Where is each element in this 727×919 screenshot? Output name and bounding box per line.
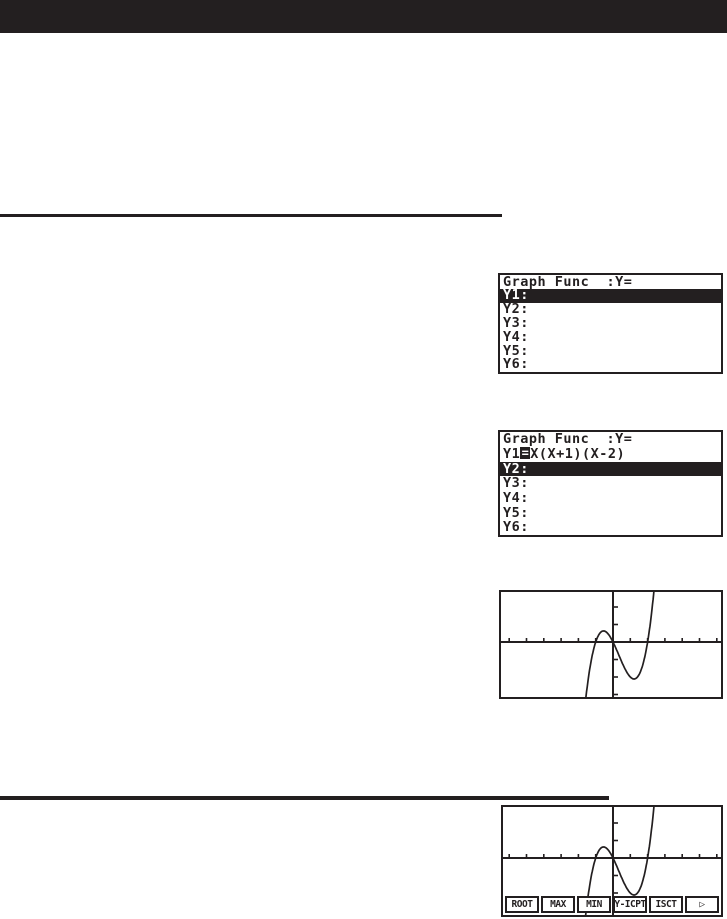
lcd-header: Graph Func :Y= (500, 275, 721, 289)
lcd-row: Y2: (500, 303, 721, 317)
lcd-row-label: Y6: (503, 519, 529, 535)
lcd-row: Y5: (500, 506, 721, 521)
lcd-row-label: Y6: (503, 356, 529, 372)
fkey-y-icpt: Y-ICPT (613, 896, 647, 913)
function-graph-plot (501, 592, 721, 697)
lcd-row-label: Y3: (503, 475, 529, 491)
lcd-row-label: Y2: (503, 461, 529, 477)
lcd-row: Y4: (500, 331, 721, 345)
fkey-max: MAX (541, 896, 575, 913)
lcd-row: Y6: (500, 358, 721, 372)
lcd-row: Y6: (500, 520, 721, 535)
masthead-bar (0, 0, 727, 33)
lcd-row-label: Y1 (503, 446, 520, 462)
fkey-menu-row: ROOTMAXMINY-ICPTISCT▷ (505, 896, 719, 913)
lcd-row: Y4: (500, 491, 721, 506)
lcd-row-label: Y5: (503, 505, 529, 521)
lcd-row: Y5: (500, 345, 721, 359)
section-rule-top (0, 214, 502, 217)
section-rule-bottom (0, 796, 609, 800)
function-expression: X(X+1)(X-2) (530, 446, 625, 462)
manual-page: Graph Func :Y= Y1:Y2:Y3:Y4:Y5:Y6: Graph … (0, 0, 727, 919)
calculator-screen-func-list-empty: Graph Func :Y= Y1:Y2:Y3:Y4:Y5:Y6: (498, 273, 723, 374)
lcd-row-list: Y1=X(X+1)(X-2)Y2:Y3:Y4:Y5:Y6: (500, 447, 721, 535)
lcd-row-selected: Y1: (500, 289, 721, 303)
function-graph (501, 592, 721, 697)
lcd-row-label: Y4: (503, 490, 529, 506)
fkey-next-page: ▷ (685, 896, 719, 913)
lcd-row: Y3: (500, 317, 721, 331)
lcd-row-selected: Y2: (500, 462, 721, 477)
calculator-screen-func-list-entered: Graph Func :Y= Y1=X(X+1)(X-2)Y2:Y3:Y4:Y5… (498, 430, 723, 537)
inverted-equals-icon: = (520, 447, 530, 459)
fkey-root: ROOT (505, 896, 539, 913)
lcd-header: Graph Func :Y= (500, 432, 721, 447)
calculator-screen-gsolv: ROOTMAXMINY-ICPTISCT▷ (501, 805, 723, 917)
lcd-row: Y3: (500, 476, 721, 491)
calculator-screen-graph (499, 590, 723, 699)
fkey-isct: ISCT (649, 896, 683, 913)
lcd-row: Y1=X(X+1)(X-2) (500, 447, 721, 462)
lcd-row-list: Y1:Y2:Y3:Y4:Y5:Y6: (500, 289, 721, 372)
fkey-min: MIN (577, 896, 611, 913)
